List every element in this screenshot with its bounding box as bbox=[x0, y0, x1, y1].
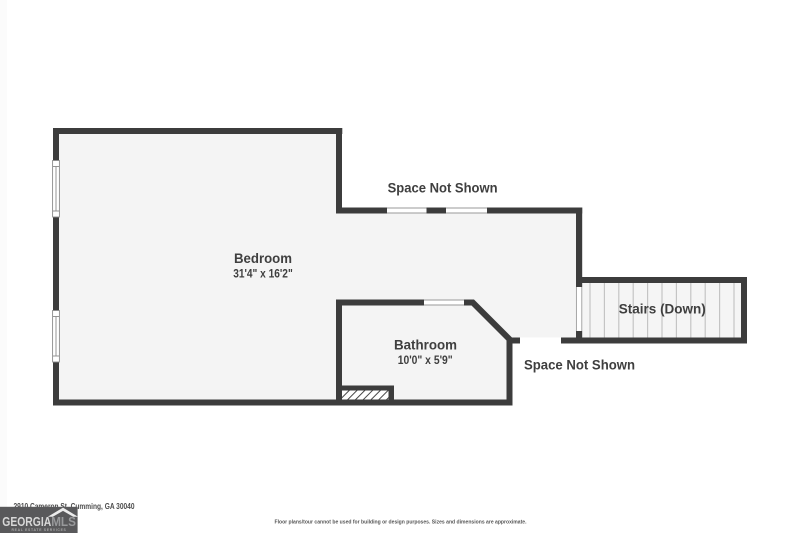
svg-text:Space Not Shown: Space Not Shown bbox=[524, 356, 635, 372]
svg-text:31'4" x 16'2": 31'4" x 16'2" bbox=[233, 267, 293, 280]
svg-text:Bathroom: Bathroom bbox=[394, 337, 457, 353]
svg-text:Space Not Shown: Space Not Shown bbox=[388, 179, 498, 195]
svg-text:10'0" x 5'9": 10'0" x 5'9" bbox=[398, 354, 453, 367]
svg-text:GEORGIA: GEORGIA bbox=[2, 514, 51, 529]
svg-text:Bedroom: Bedroom bbox=[234, 250, 292, 266]
svg-text:MLS: MLS bbox=[51, 514, 76, 529]
svg-text:Stairs (Down): Stairs (Down) bbox=[619, 300, 706, 316]
svg-text:Floor plans/tour cannot be use: Floor plans/tour cannot be used for buil… bbox=[275, 520, 527, 526]
svg-text:REAL ESTATE SERVICES: REAL ESTATE SERVICES bbox=[11, 528, 66, 532]
